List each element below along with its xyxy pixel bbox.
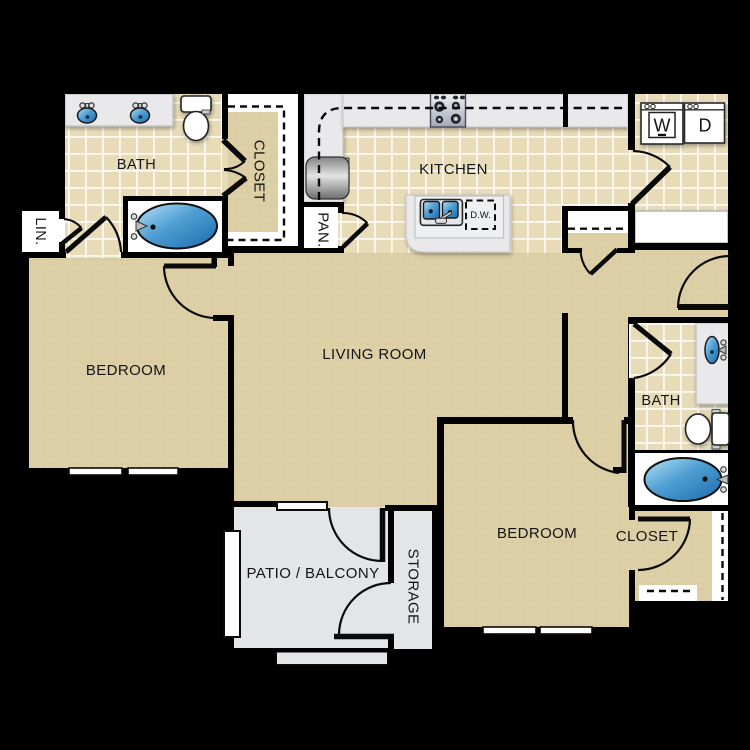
svg-text:D.W.: D.W. — [470, 210, 491, 221]
svg-text:D: D — [699, 116, 712, 136]
svg-text:LIVING ROOM: LIVING ROOM — [322, 346, 426, 363]
svg-text:PATIO / BALCONY: PATIO / BALCONY — [247, 565, 380, 582]
svg-text:BEDROOM: BEDROOM — [86, 362, 166, 379]
svg-text:BEDROOM: BEDROOM — [497, 525, 577, 542]
svg-text:LIN.: LIN. — [32, 217, 48, 245]
svg-text:PAN.: PAN. — [315, 212, 332, 248]
svg-text:CLOSET: CLOSET — [616, 528, 678, 545]
svg-text:BATH: BATH — [641, 393, 680, 409]
svg-text:KITCHEN: KITCHEN — [419, 161, 488, 178]
svg-text:STORAGE: STORAGE — [405, 549, 422, 625]
svg-text:W: W — [654, 116, 671, 136]
svg-text:BATH: BATH — [117, 157, 156, 173]
svg-text:CLOSET: CLOSET — [251, 140, 268, 202]
